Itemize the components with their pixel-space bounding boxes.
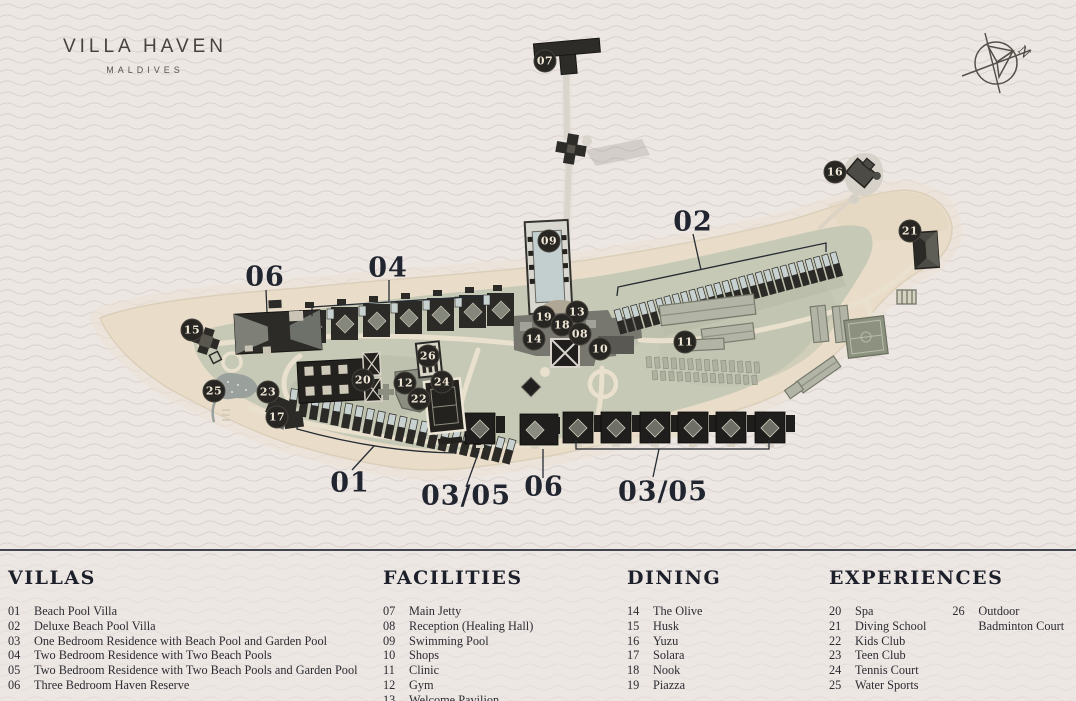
map-badge-21: 21 [899,220,922,243]
map-badge-16: 16 [824,161,847,184]
legend-title: EXPERIENCES [829,567,1074,589]
legend-item-10: 10Shops [383,648,618,663]
legend-item-08: 08Reception (Healing Hall) [383,619,618,634]
legend-divider [0,549,1076,551]
area-label-04: 04 [368,253,408,284]
map-badge-22: 22 [408,388,431,411]
legend-item-19: 19Piazza [627,678,822,693]
map-badge-10: 10 [589,338,612,361]
area-label-06: 06 [524,472,564,503]
legend-column-dining: DINING14The Olive15Husk16Yuzu17Solara18N… [627,567,822,693]
legend-item-23: 23Teen Club [829,648,926,663]
stage: N VILLA HAVEN MALDIVES 07091913181408101… [0,0,1076,701]
map-badge-24: 24 [431,371,454,394]
brand-title: VILLA HAVEN [50,36,240,58]
legend-item-06: 06Three Bedroom Haven Reserve [8,678,378,693]
map-badge-17: 17 [266,406,289,429]
brand-logo: VILLA HAVEN MALDIVES [50,36,240,75]
legend-item-24: 24Tennis Court [829,663,926,678]
legend-item-15: 15Husk [627,619,822,634]
legend-column-villas: VILLAS01Beach Pool Villa02Deluxe Beach P… [8,567,378,693]
legend-item-03: 03One Bedroom Residence with Beach Pool … [8,634,378,649]
legend-item-12: 12Gym [383,678,618,693]
map-badge-11: 11 [674,331,697,354]
brand-subtitle: MALDIVES [50,65,240,75]
sports-field [844,316,888,359]
legend-item-05: 05Two Bedroom Residence with Two Beach P… [8,663,378,678]
map-badge-23: 23 [257,381,280,404]
legend-item-22: 22Kids Club [829,634,926,649]
area-label-03-05: 03/05 [421,481,511,512]
solar-structure [897,290,916,304]
legend-title: DINING [627,567,822,589]
legend-item-02: 02Deluxe Beach Pool Villa [8,619,378,634]
map-badge-20: 20 [352,369,375,392]
legend-item-04: 04Two Bedroom Residence with Two Beach P… [8,648,378,663]
map-badge-26: 26 [417,345,440,368]
legend-item-13: 13Welcome Pavilion [383,693,618,701]
legend-item-20: 20Spa [829,604,926,619]
legend-item-16: 16Yuzu [627,634,822,649]
legend-item-14: 14The Olive [627,604,822,619]
legend-item-21: 21Diving School [829,619,926,634]
legend-title: VILLAS [8,567,378,589]
legend-item-26: 26Outdoor Badminton Court [952,604,1070,634]
legend-title: FACILITIES [383,567,618,589]
legend-item-07: 07Main Jetty [383,604,618,619]
map-badge-14: 14 [523,328,546,351]
legend-item-11: 11Clinic [383,663,618,678]
map-badge-09: 09 [538,230,561,253]
area-label-06: 06 [245,262,285,293]
map-badge-07: 07 [534,50,557,73]
legend-column-facilities: FACILITIES07Main Jetty08Reception (Heali… [383,567,618,701]
legend-item-01: 01Beach Pool Villa [8,604,378,619]
legend-item-09: 09Swimming Pool [383,634,618,649]
area-label-03-05: 03/05 [618,477,708,508]
map-badge-15: 15 [181,319,204,342]
legend-column-experiences: EXPERIENCES 20Spa21Diving School22Kids C… [829,567,1074,693]
legend-item-25: 25Water Sports [829,678,926,693]
area-label-01: 01 [330,468,370,499]
legend-item-17: 17Solara [627,648,822,663]
map-badge-25: 25 [203,380,226,403]
map-badge-08: 08 [569,323,592,346]
area-label-02: 02 [673,207,713,238]
legend-item-18: 18Nook [627,663,822,678]
